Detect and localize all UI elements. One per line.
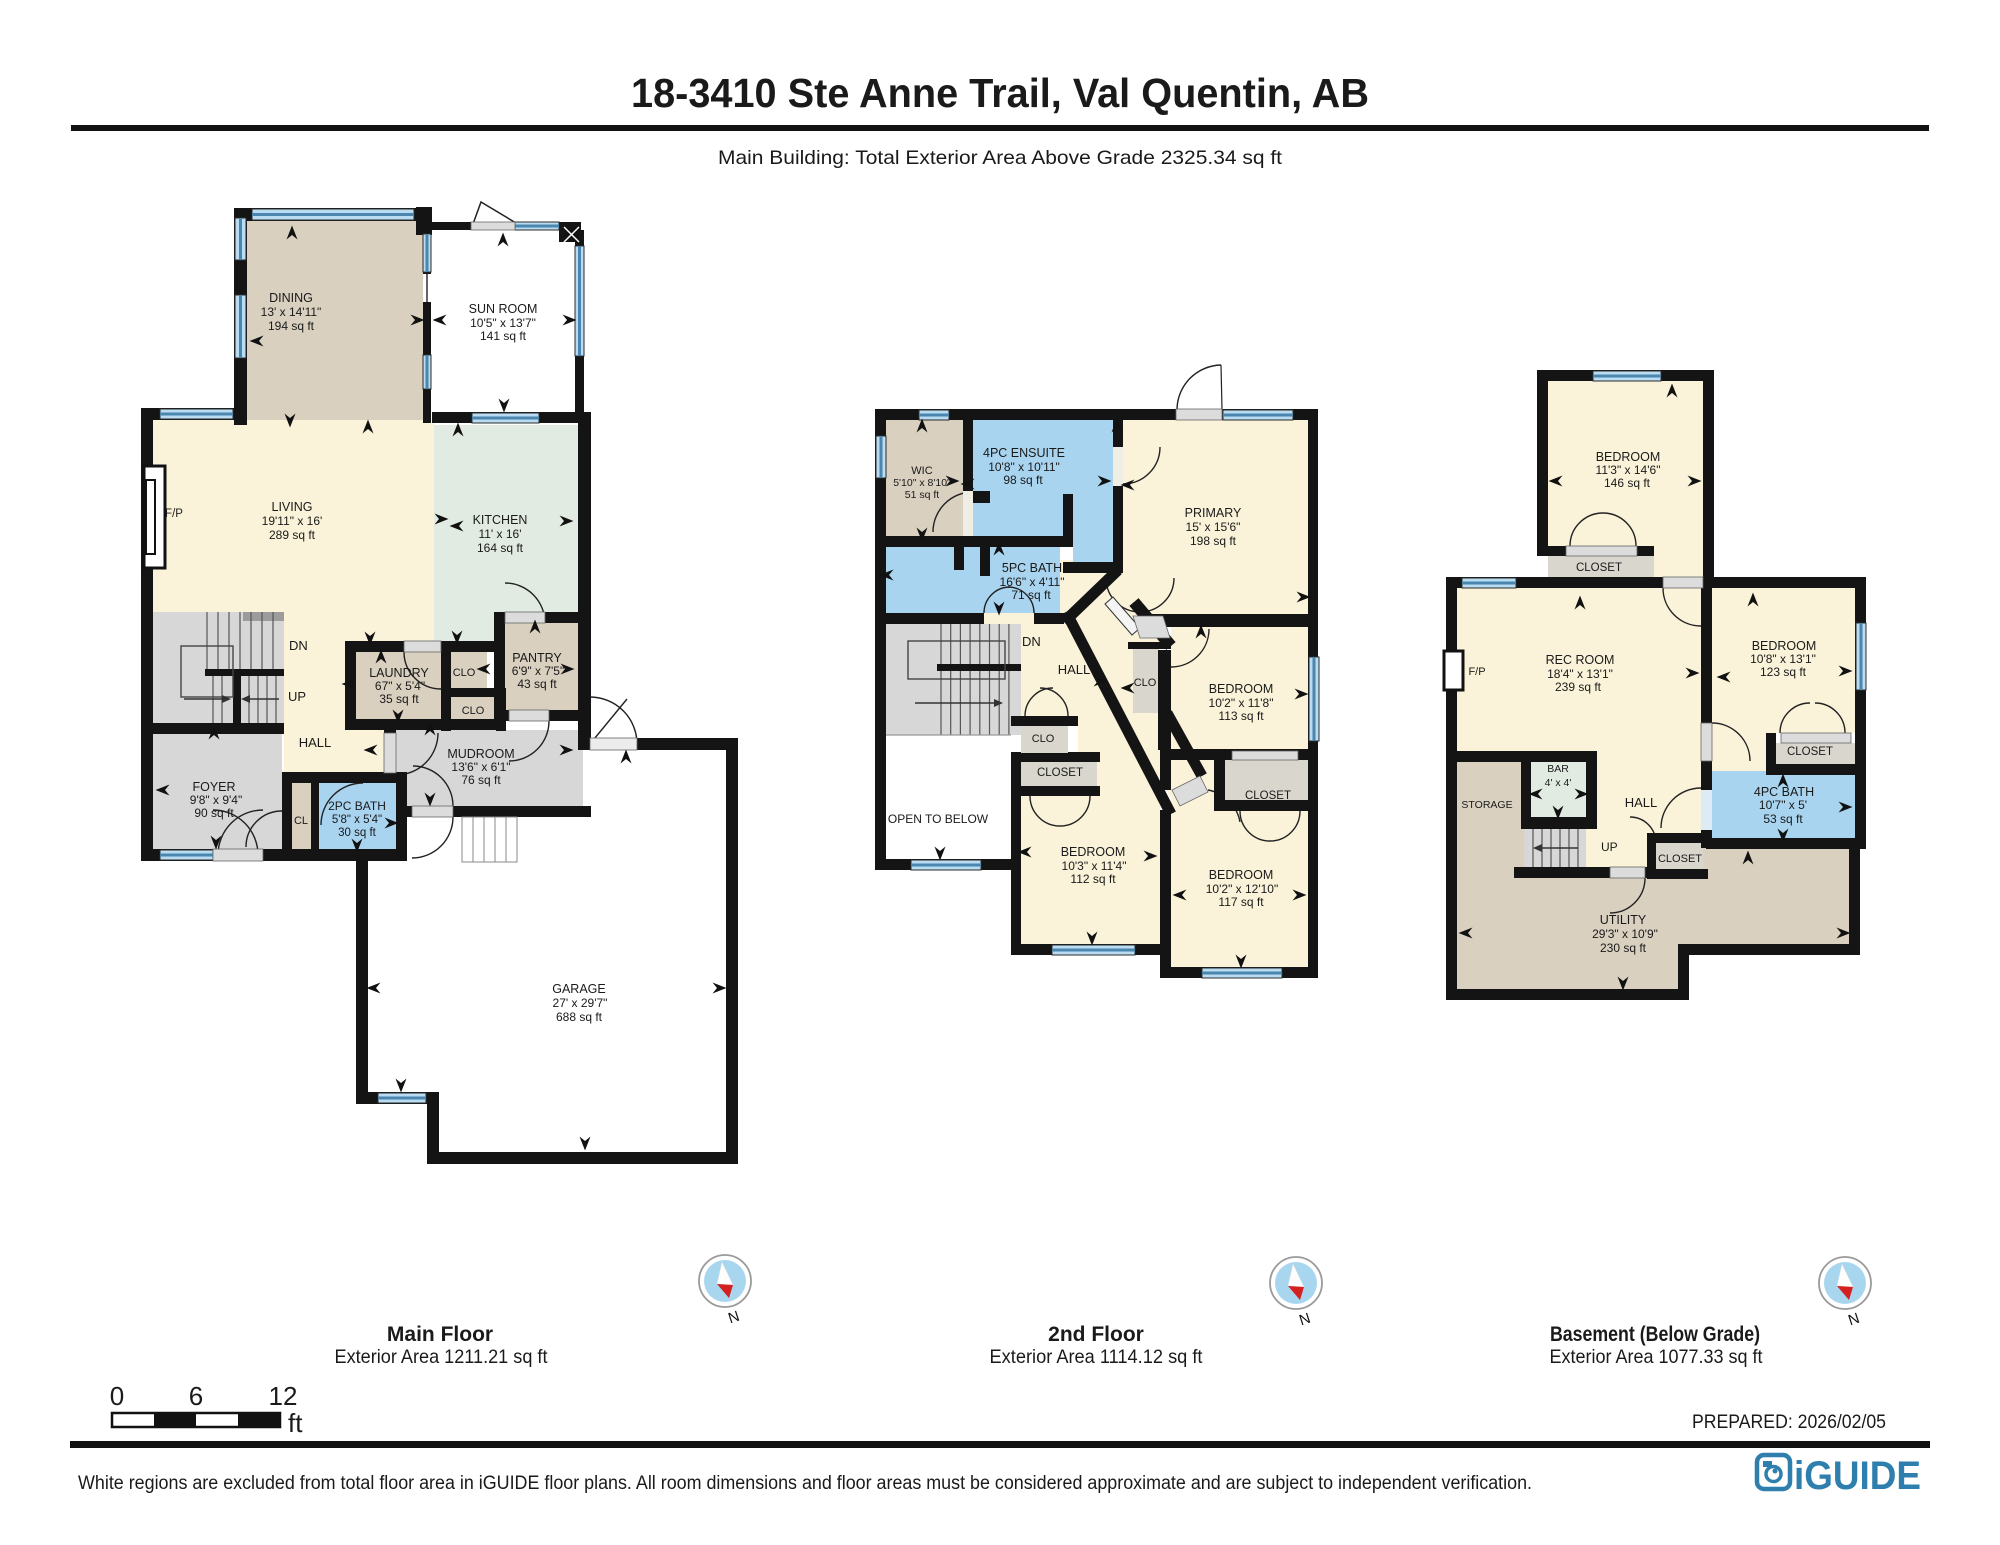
svg-text:Main Floor: Main Floor [387, 1323, 493, 1346]
svg-text:WIC: WIC [911, 465, 932, 477]
svg-text:5'8" x 5'4": 5'8" x 5'4" [332, 814, 382, 826]
svg-text:Exterior Area 1077.33 sq ft: Exterior Area 1077.33 sq ft [1550, 1346, 1764, 1368]
svg-text:123 sq ft: 123 sq ft [1760, 665, 1807, 679]
svg-text:53 sq ft: 53 sq ft [1763, 812, 1803, 826]
svg-text:4PC ENSUITE: 4PC ENSUITE [983, 446, 1065, 460]
svg-text:194 sq ft: 194 sq ft [268, 319, 315, 333]
svg-text:289 sq ft: 289 sq ft [269, 528, 316, 542]
svg-text:GARAGE: GARAGE [552, 982, 606, 996]
svg-text:141 sq ft: 141 sq ft [480, 329, 527, 343]
svg-text:HALL: HALL [1625, 795, 1658, 810]
svg-text:117 sq ft: 117 sq ft [1218, 895, 1264, 909]
svg-text:CLO: CLO [453, 667, 476, 679]
svg-text:BEDROOM: BEDROOM [1209, 868, 1274, 882]
svg-text:13' x 14'11": 13' x 14'11" [261, 305, 322, 319]
svg-text:PANTRY: PANTRY [512, 651, 562, 665]
svg-text:REC ROOM: REC ROOM [1546, 653, 1615, 667]
svg-text:BAR: BAR [1547, 763, 1569, 775]
svg-text:112 sq ft: 112 sq ft [1070, 872, 1116, 886]
svg-text:10'7" x 5': 10'7" x 5' [1759, 798, 1807, 812]
svg-text:164 sq ft: 164 sq ft [477, 541, 524, 555]
svg-text:230 sq ft: 230 sq ft [1600, 941, 1647, 955]
svg-text:F/P: F/P [165, 508, 183, 520]
svg-text:CLOSET: CLOSET [1787, 746, 1833, 758]
svg-text:67" x 5'4": 67" x 5'4" [375, 679, 425, 693]
svg-text:iGUIDE: iGUIDE [1794, 1454, 1921, 1498]
svg-text:239 sq ft: 239 sq ft [1555, 680, 1602, 694]
svg-text:16'6" x 4'11": 16'6" x 4'11" [1000, 575, 1065, 589]
svg-text:15' x 15'6": 15' x 15'6" [1186, 520, 1241, 534]
svg-text:5PC BATH: 5PC BATH [1002, 561, 1062, 575]
svg-text:11'3" x 14'6": 11'3" x 14'6" [1596, 463, 1661, 477]
svg-text:30 sq ft: 30 sq ft [338, 827, 377, 839]
svg-text:CL: CL [294, 815, 308, 827]
svg-text:90 sq ft: 90 sq ft [194, 806, 234, 820]
svg-text:White regions are excluded fro: White regions are excluded from total fl… [78, 1473, 1532, 1494]
svg-text:5'10" x 8'10": 5'10" x 8'10" [893, 477, 951, 489]
svg-text:STORAGE: STORAGE [1461, 799, 1512, 811]
svg-text:4' x 4': 4' x 4' [1545, 777, 1572, 789]
svg-text:2PC BATH: 2PC BATH [328, 799, 386, 813]
svg-text:OPEN TO BELOW: OPEN TO BELOW [888, 812, 989, 826]
svg-text:6'9" x 7'5": 6'9" x 7'5" [512, 664, 564, 678]
svg-text:Main Building: Total Exterior: Main Building: Total Exterior Area Above… [718, 147, 1283, 169]
svg-text:ft: ft [288, 1408, 303, 1438]
svg-text:UP: UP [288, 689, 306, 704]
svg-text:UTILITY: UTILITY [1600, 913, 1647, 927]
svg-text:MUDROOM: MUDROOM [447, 747, 514, 761]
svg-text:Exterior Area 1211.21 sq ft: Exterior Area 1211.21 sq ft [335, 1346, 549, 1368]
svg-text:CLOSET: CLOSET [1037, 767, 1083, 779]
svg-text:10'5" x 13'7": 10'5" x 13'7" [470, 316, 536, 330]
svg-text:BEDROOM: BEDROOM [1752, 639, 1817, 653]
svg-text:CLOSET: CLOSET [1658, 853, 1702, 865]
svg-text:198 sq ft: 198 sq ft [1190, 534, 1237, 548]
svg-text:BEDROOM: BEDROOM [1596, 450, 1661, 464]
svg-text:18'4" x 13'1": 18'4" x 13'1" [1547, 667, 1613, 681]
svg-text:HALL: HALL [299, 735, 332, 750]
svg-text:6: 6 [189, 1381, 203, 1411]
svg-text:Exterior Area 1114.12 sq ft: Exterior Area 1114.12 sq ft [990, 1346, 1204, 1368]
svg-text:HALL: HALL [1058, 662, 1091, 677]
svg-text:51 sq ft: 51 sq ft [905, 489, 940, 501]
svg-text:SUN ROOM: SUN ROOM [469, 302, 538, 316]
svg-text:BEDROOM: BEDROOM [1061, 845, 1126, 859]
svg-text:PREPARED: 2026/02/05: PREPARED: 2026/02/05 [1692, 1412, 1886, 1433]
svg-text:CLO: CLO [1032, 733, 1055, 745]
svg-text:113 sq ft: 113 sq ft [1218, 709, 1264, 723]
svg-text:35 sq ft: 35 sq ft [379, 692, 419, 706]
svg-text:CLOSET: CLOSET [1576, 562, 1622, 574]
svg-text:18-3410 Ste Anne Trail, Val Qu: 18-3410 Ste Anne Trail, Val Quentin, AB [631, 70, 1369, 116]
svg-text:146 sq ft: 146 sq ft [1604, 476, 1651, 490]
svg-text:CLO: CLO [1134, 677, 1157, 689]
svg-text:F/P: F/P [1468, 666, 1485, 678]
svg-text:10'8" x 10'11": 10'8" x 10'11" [988, 460, 1060, 474]
svg-text:13'6" x 6'1": 13'6" x 6'1" [451, 760, 510, 774]
svg-text:LIVING: LIVING [272, 500, 313, 514]
svg-text:DN: DN [289, 638, 308, 653]
svg-text:71 sq ft: 71 sq ft [1011, 588, 1051, 602]
svg-text:Basement (Below Grade): Basement (Below Grade) [1550, 1323, 1760, 1346]
svg-text:98 sq ft: 98 sq ft [1003, 473, 1043, 487]
svg-text:9'8" x 9'4": 9'8" x 9'4" [190, 793, 242, 807]
svg-text:12: 12 [269, 1381, 298, 1411]
svg-text:10'2" x 11'8": 10'2" x 11'8" [1209, 696, 1274, 710]
svg-text:10'2" x 12'10": 10'2" x 12'10" [1206, 882, 1279, 896]
svg-text:CLOSET: CLOSET [1245, 790, 1291, 802]
svg-text:2nd Floor: 2nd Floor [1048, 1323, 1144, 1346]
svg-text:688 sq ft: 688 sq ft [556, 1010, 603, 1024]
svg-text:UP: UP [1601, 840, 1618, 854]
svg-text:27' x 29'7": 27' x 29'7" [553, 996, 608, 1010]
svg-text:11' x 16': 11' x 16' [478, 527, 521, 541]
svg-text:BEDROOM: BEDROOM [1209, 682, 1274, 696]
svg-text:43 sq ft: 43 sq ft [517, 677, 557, 691]
svg-text:DN: DN [1022, 634, 1041, 649]
svg-text:76 sq ft: 76 sq ft [461, 773, 501, 787]
svg-text:DINING: DINING [269, 291, 313, 305]
svg-text:KITCHEN: KITCHEN [473, 513, 528, 527]
svg-text:10'8" x 13'1": 10'8" x 13'1" [1750, 652, 1816, 666]
svg-text:PRIMARY: PRIMARY [1185, 506, 1242, 520]
svg-text:29'3" x 10'9": 29'3" x 10'9" [1592, 927, 1658, 941]
svg-text:19'11" x 16': 19'11" x 16' [262, 514, 323, 528]
svg-text:10'3" x 11'4": 10'3" x 11'4" [1062, 859, 1127, 873]
svg-text:LAUNDRY: LAUNDRY [369, 666, 429, 680]
svg-text:FOYER: FOYER [192, 780, 235, 794]
svg-text:0: 0 [110, 1381, 124, 1411]
svg-text:CLO: CLO [462, 705, 485, 717]
svg-text:4PC BATH: 4PC BATH [1754, 785, 1814, 799]
